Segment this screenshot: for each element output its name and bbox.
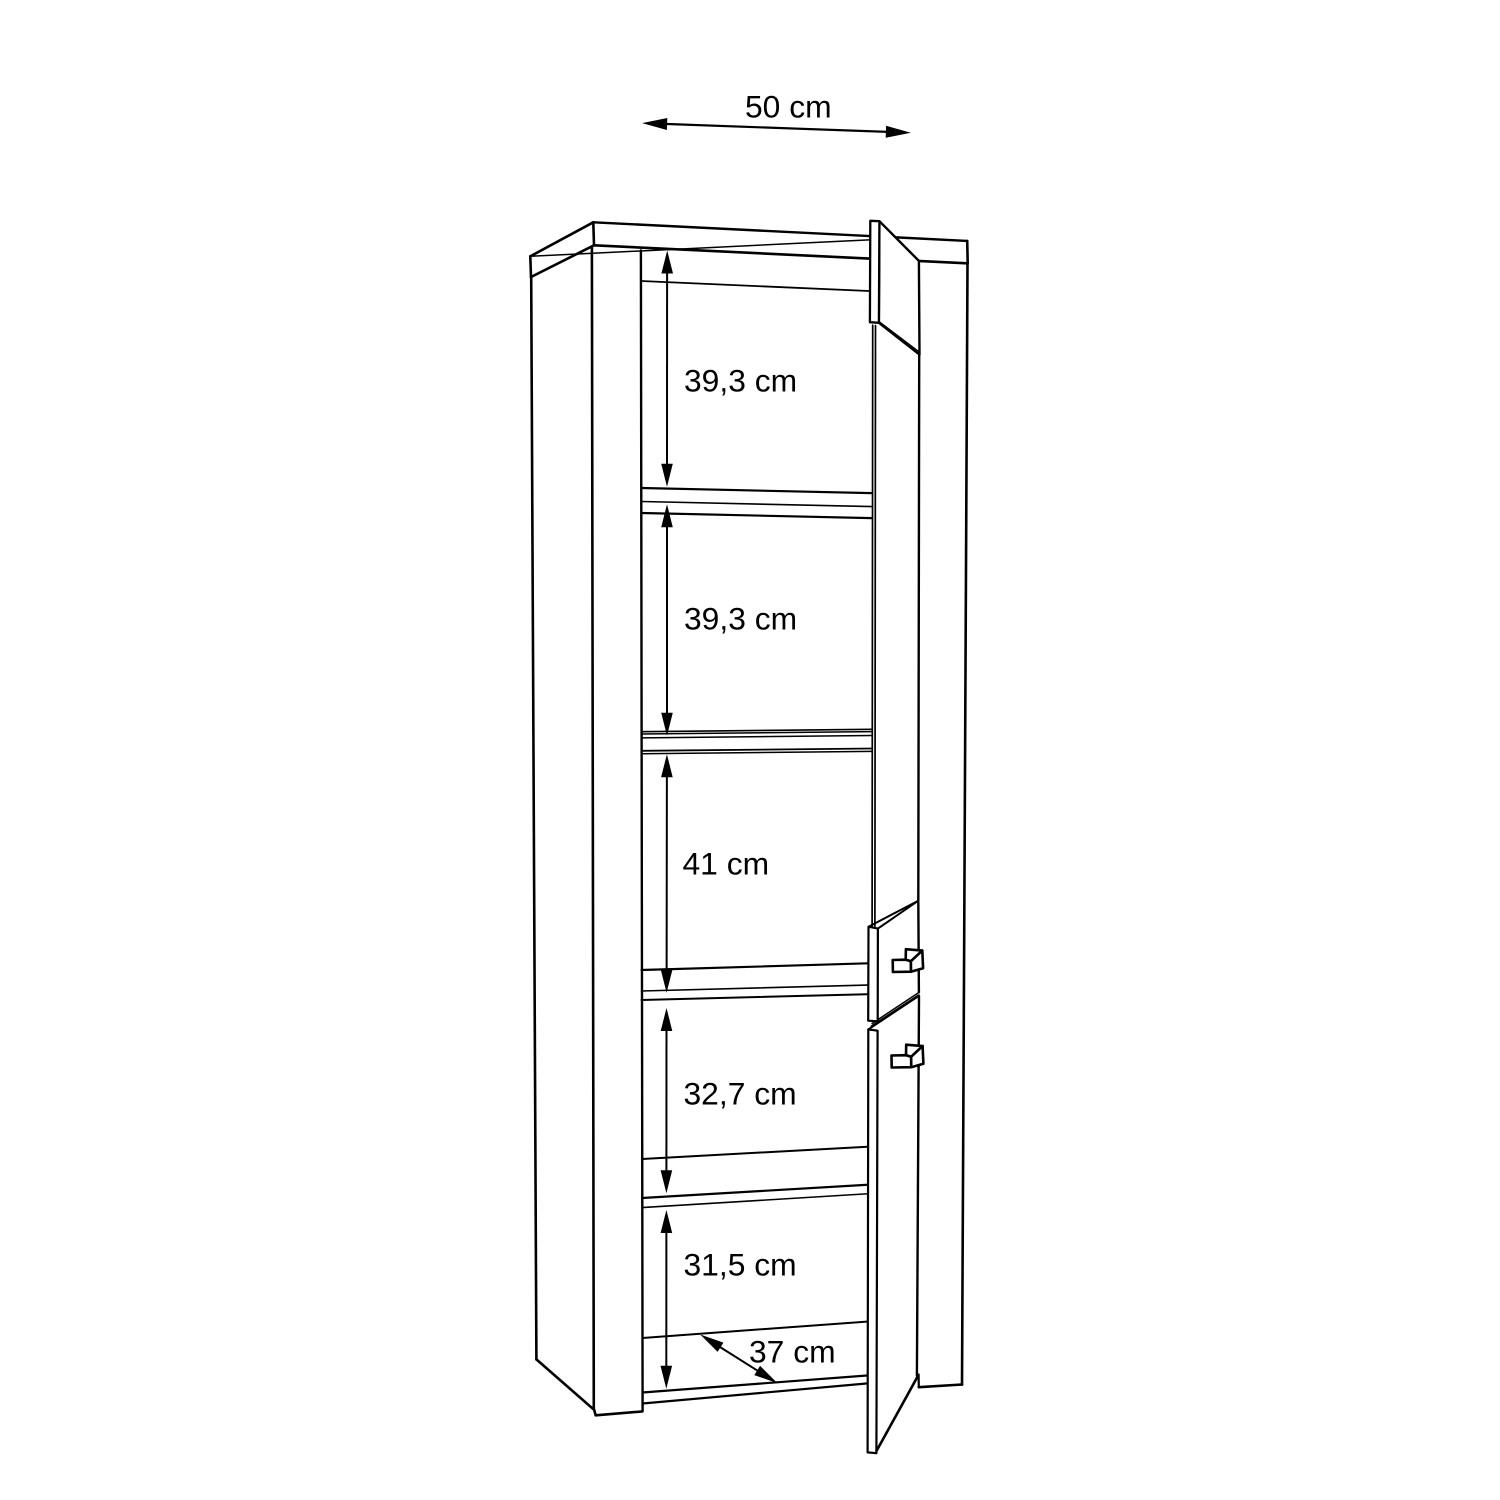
svg-text:31,5 cm: 31,5 cm <box>684 1247 797 1283</box>
svg-text:41 cm: 41 cm <box>683 846 770 882</box>
svg-text:50 cm: 50 cm <box>745 88 832 124</box>
svg-text:39,3 cm: 39,3 cm <box>684 363 797 399</box>
svg-text:39,3 cm: 39,3 cm <box>684 600 797 636</box>
svg-text:32,7 cm: 32,7 cm <box>684 1076 797 1112</box>
svg-text:37 cm: 37 cm <box>749 1334 836 1370</box>
